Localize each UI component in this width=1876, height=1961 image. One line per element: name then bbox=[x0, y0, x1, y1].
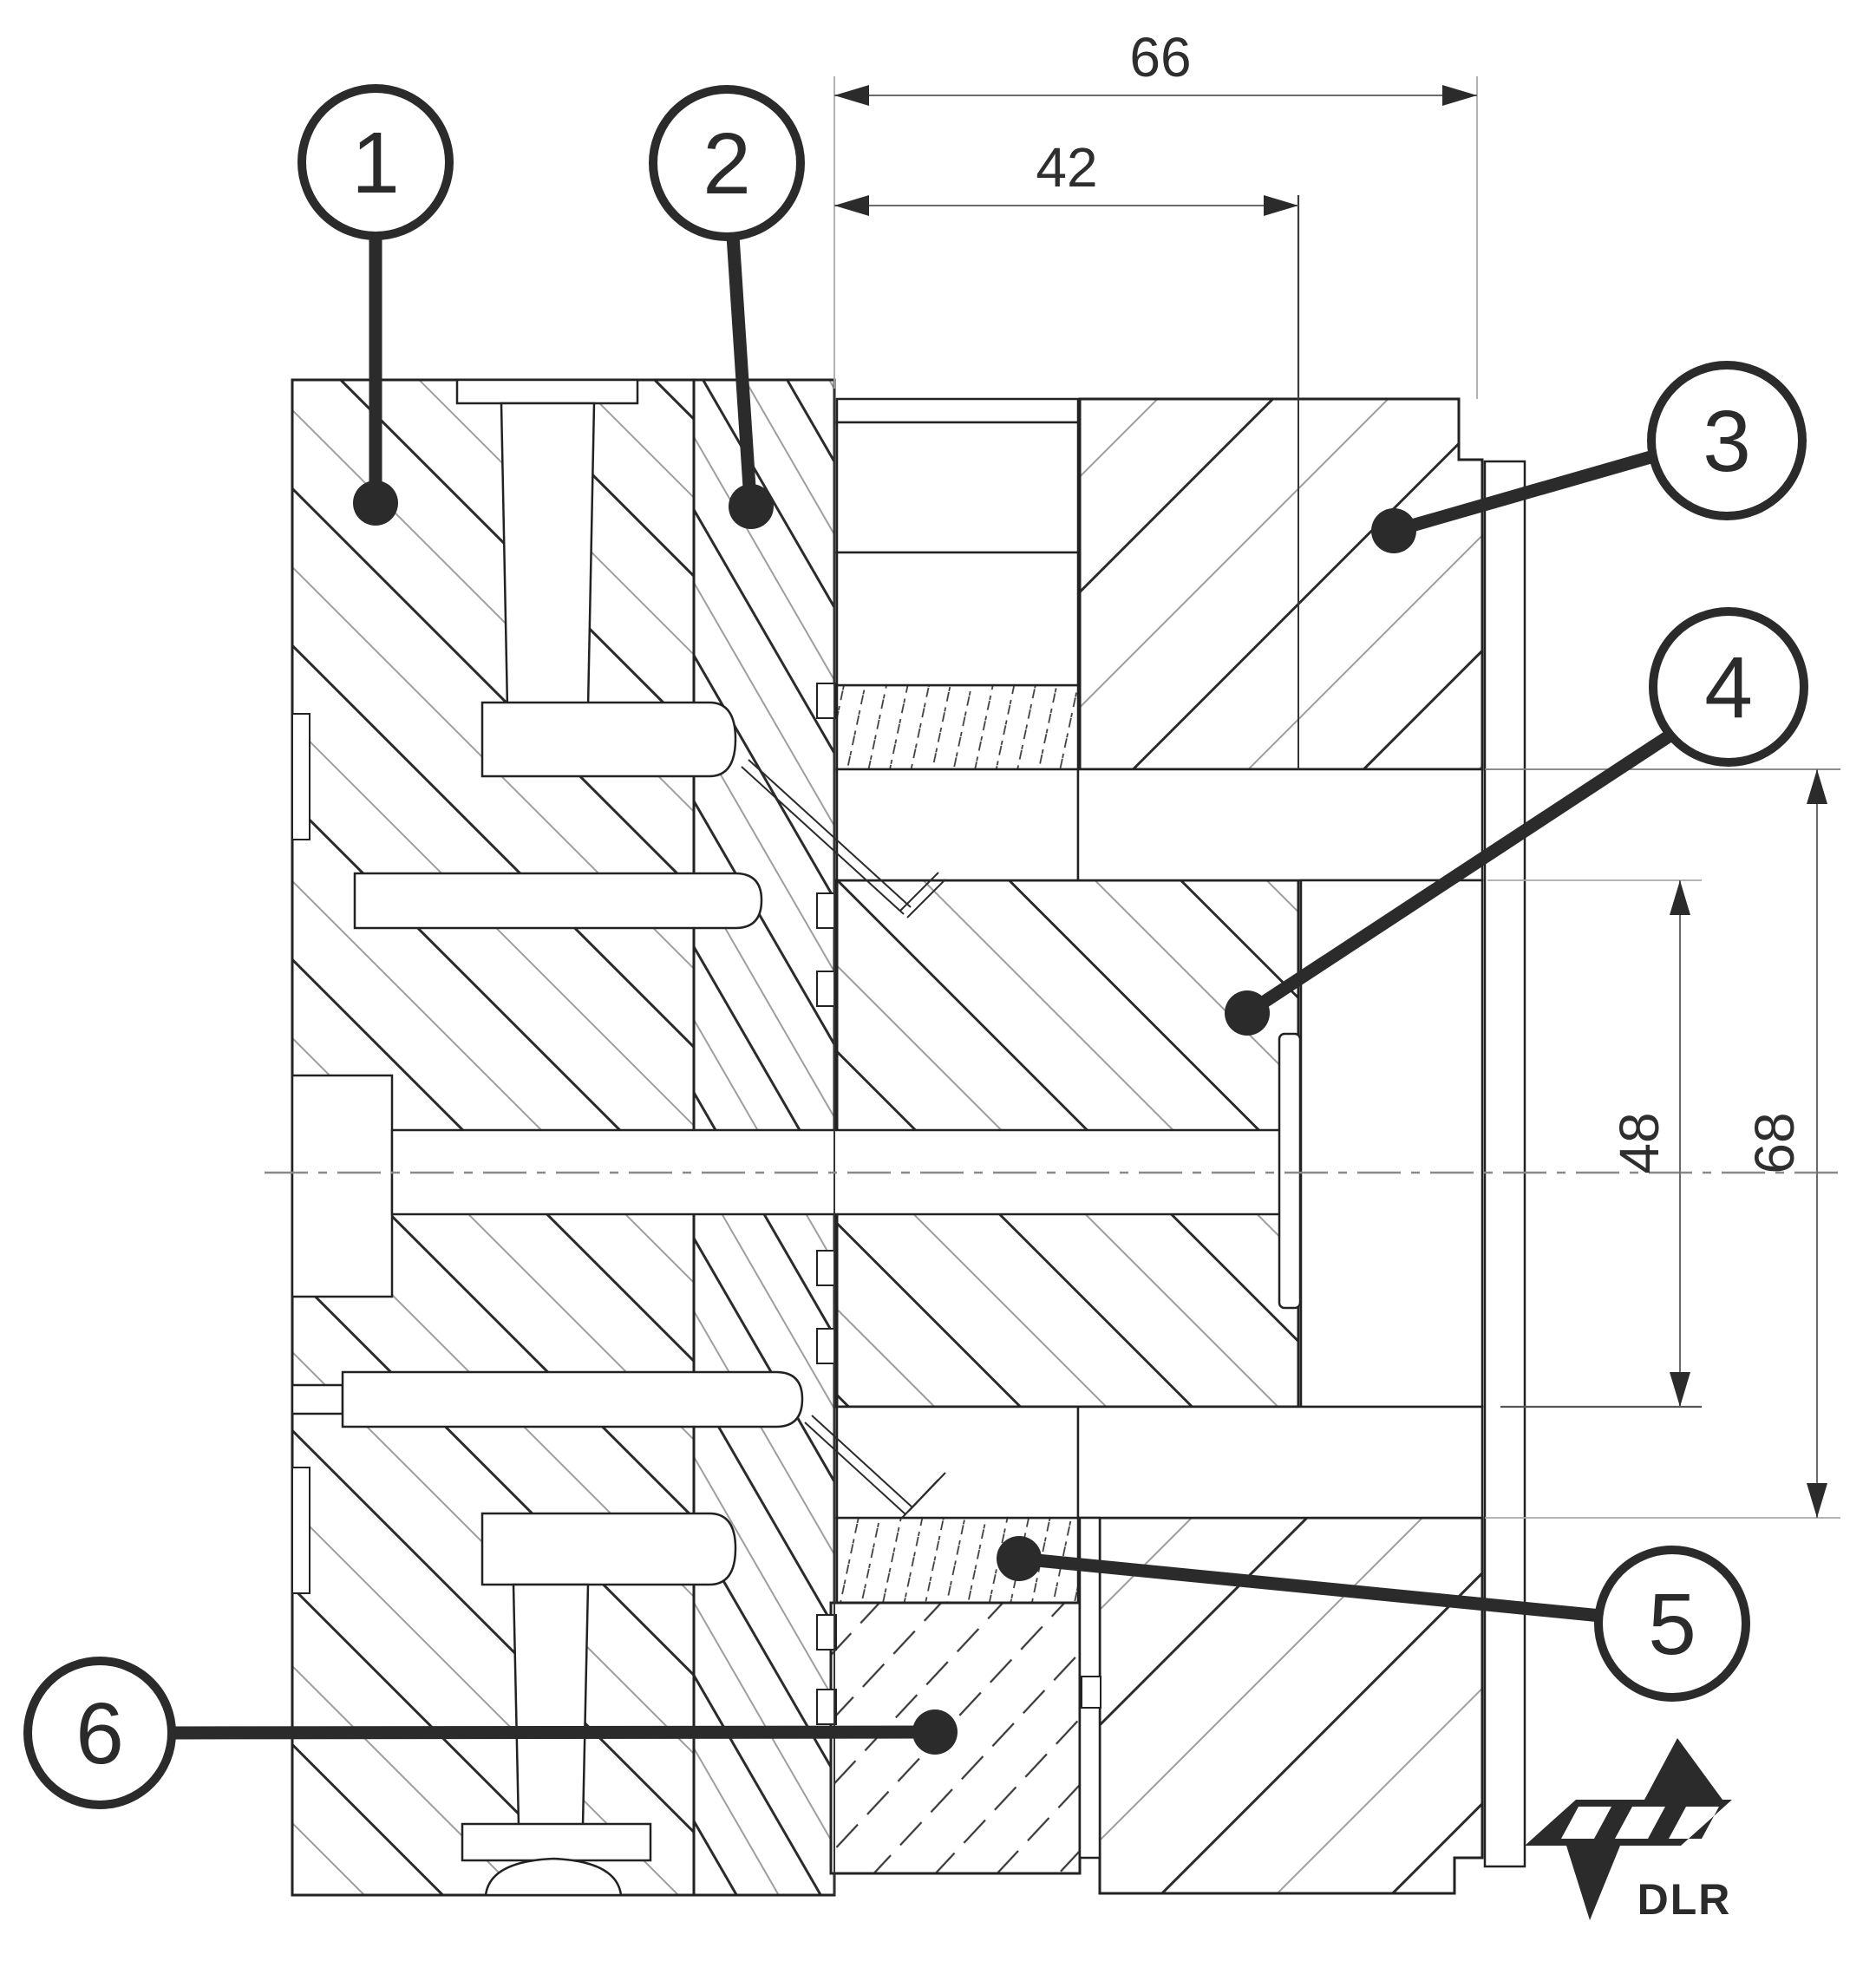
balloon-2: 2 bbox=[653, 89, 801, 237]
dim-42-label: 42 bbox=[1036, 136, 1097, 199]
dim-68-label: 68 bbox=[1743, 1112, 1806, 1173]
balloon-6-label: 6 bbox=[75, 1685, 124, 1782]
cross-section-drawing: 66 42 48 68 1 2 bbox=[0, 0, 1876, 1961]
balloon-5-label: 5 bbox=[1648, 1576, 1696, 1673]
dim-48-label: 48 bbox=[1608, 1112, 1670, 1173]
balloon-4: 4 bbox=[1653, 611, 1804, 762]
dimension-66: 66 bbox=[834, 26, 1477, 106]
dimension-48: 48 bbox=[1608, 880, 1690, 1407]
dimension-68: 68 bbox=[1743, 769, 1827, 1518]
technical-drawing-page: 66 42 48 68 1 2 bbox=[0, 0, 1876, 1961]
dlr-logo: DLR bbox=[1525, 1738, 1732, 1924]
dlr-logo-text: DLR bbox=[1637, 1875, 1732, 1924]
balloon-5: 5 bbox=[1598, 1550, 1746, 1697]
dlr-logo-icon bbox=[1525, 1800, 1732, 1846]
balloon-4-label: 4 bbox=[1704, 639, 1753, 736]
dlr-logo-wing-bottom bbox=[1566, 1846, 1620, 1920]
balloon-1-label: 1 bbox=[351, 114, 400, 212]
balloon-1: 1 bbox=[302, 88, 449, 236]
balloon-3-label: 3 bbox=[1703, 393, 1751, 490]
balloon-3: 3 bbox=[1651, 365, 1802, 516]
dimension-42: 42 bbox=[834, 136, 1298, 216]
right-mounting-plate bbox=[1485, 461, 1525, 1866]
dlr-logo-wing-top bbox=[1644, 1738, 1722, 1800]
balloon-2-label: 2 bbox=[703, 115, 751, 212]
dim-66-label: 66 bbox=[1129, 26, 1191, 88]
balloon-6: 6 bbox=[28, 1661, 172, 1805]
